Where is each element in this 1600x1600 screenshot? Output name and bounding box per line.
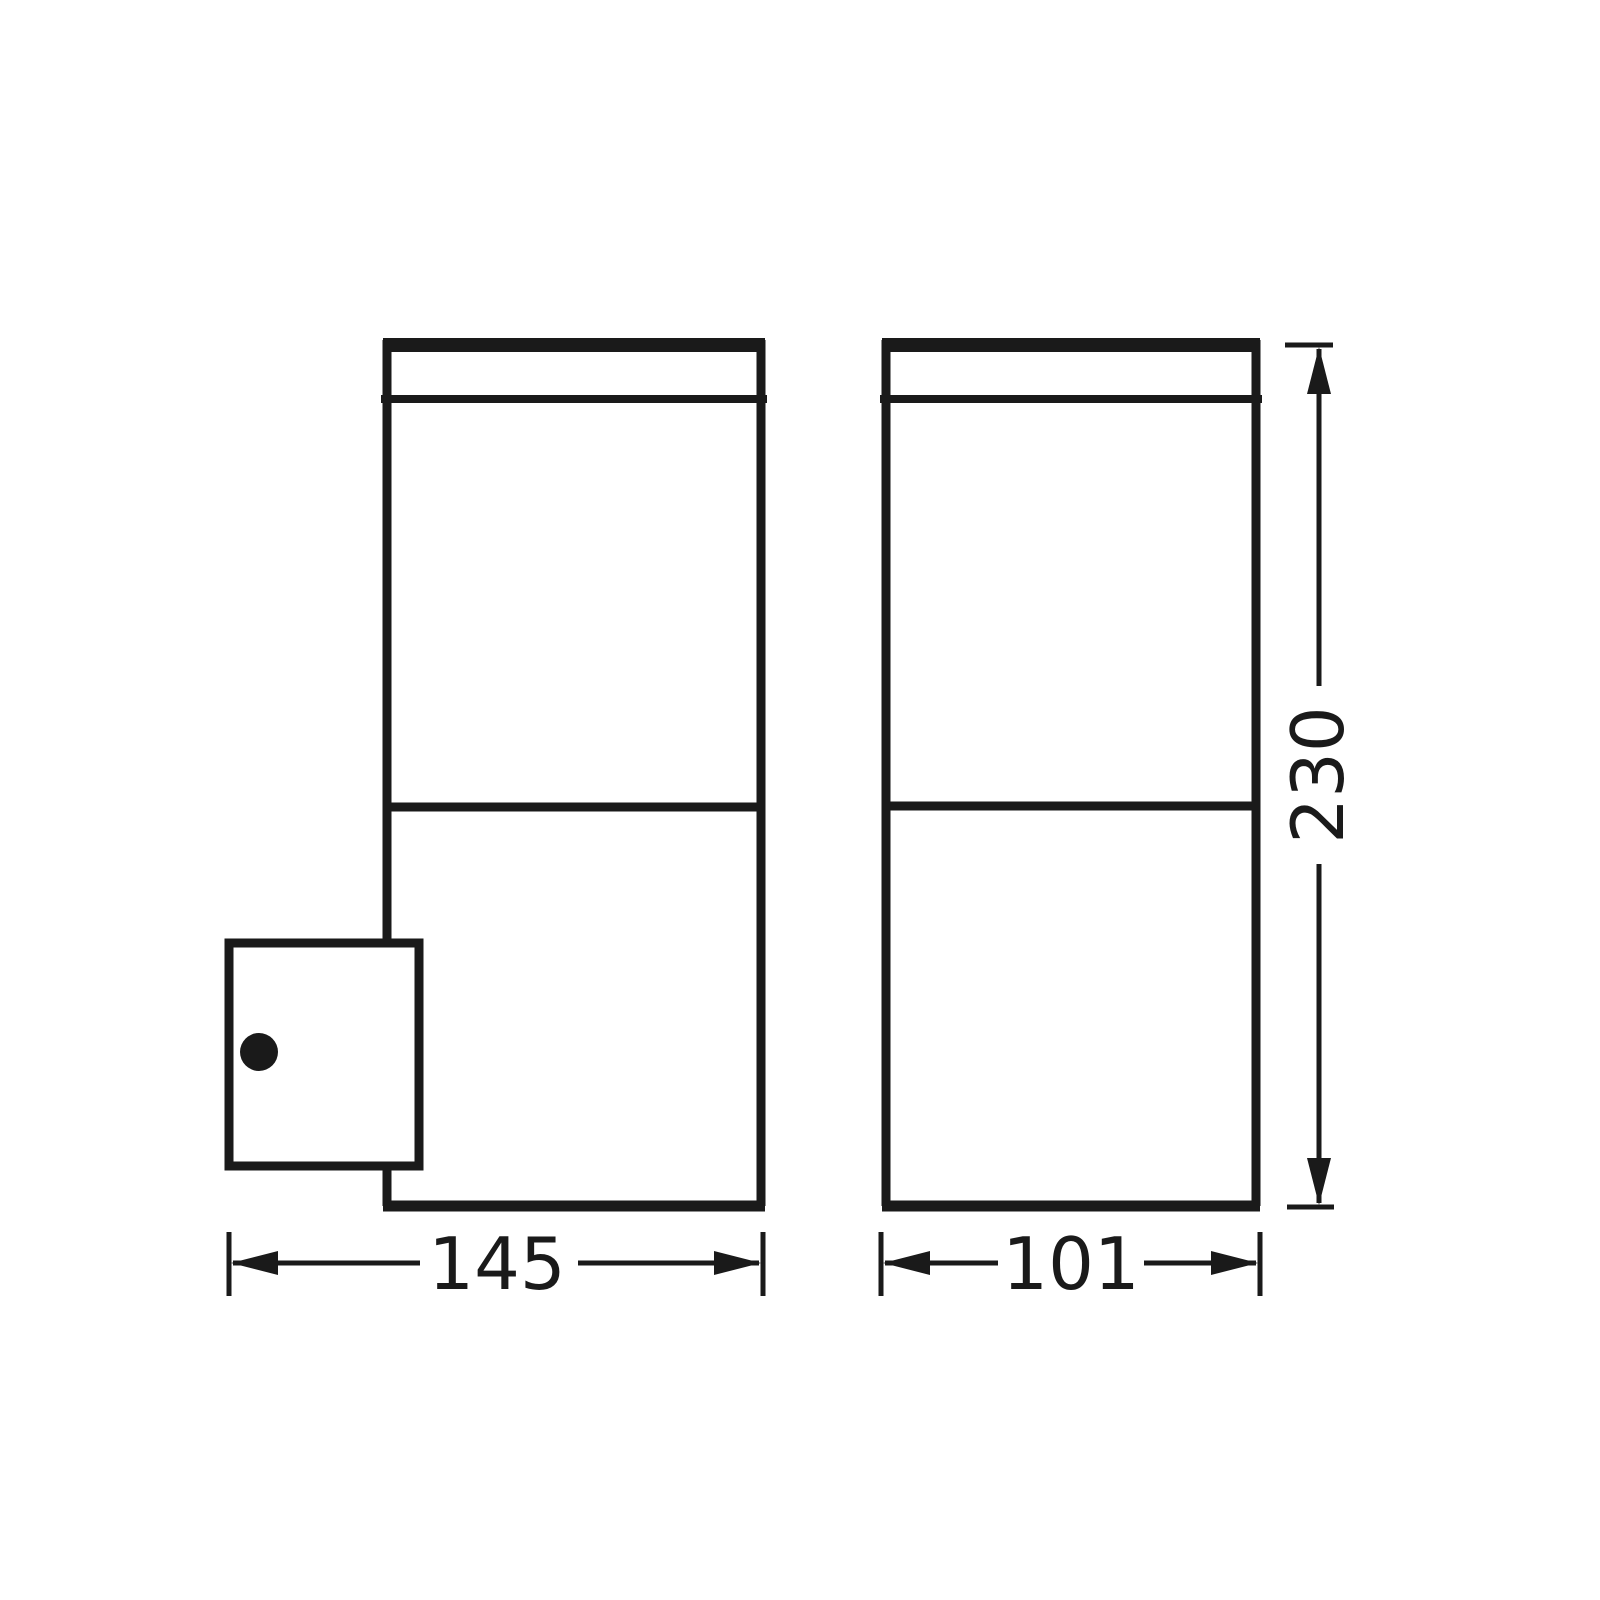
dim-230-top-arrowhead — [1307, 347, 1331, 394]
dimension-width-side: 145 — [229, 1222, 763, 1306]
side-view — [229, 340, 767, 1206]
dim-101-label: 101 — [1002, 1222, 1139, 1306]
bracket-screw-hole-dot — [240, 1033, 278, 1071]
dimension-width-front: 101 — [881, 1222, 1260, 1306]
front-view — [880, 340, 1262, 1206]
dim-101-right-arrowhead — [1211, 1251, 1258, 1275]
dim-230-bottom-arrowhead — [1307, 1158, 1331, 1205]
dim-145-right-arrowhead — [714, 1251, 761, 1275]
dim-230-label: 230 — [1276, 706, 1360, 843]
dimension-height: 230 — [1276, 345, 1360, 1207]
drawing-canvas: 145 101 230 — [0, 0, 1600, 1600]
technical-drawing: 145 101 230 — [0, 0, 1600, 1600]
dim-101-left-arrowhead — [883, 1251, 930, 1275]
dim-145-label: 145 — [428, 1222, 565, 1306]
dim-145-left-arrowhead — [231, 1251, 278, 1275]
